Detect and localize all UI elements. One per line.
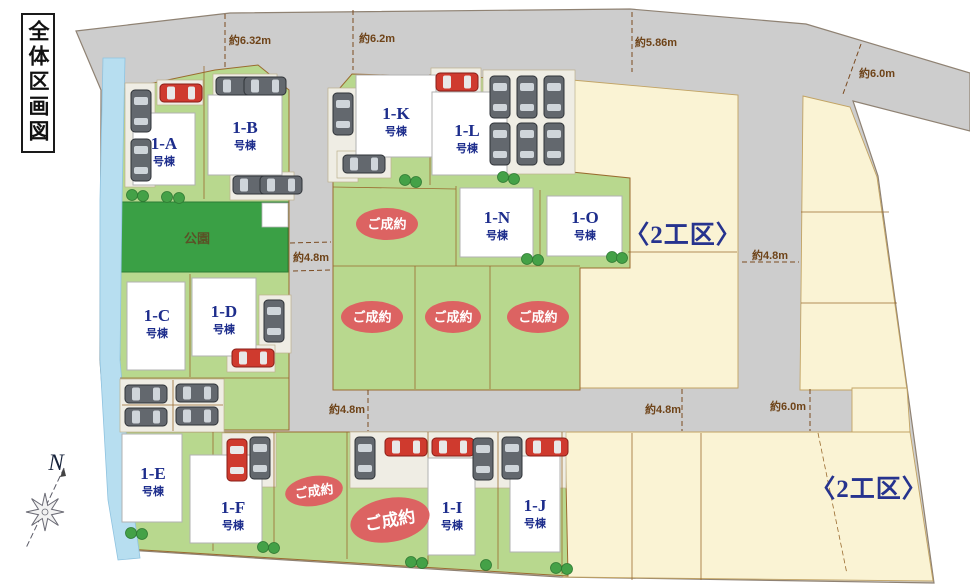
car-icon: [517, 123, 537, 165]
house-unit-suffix: 号棟: [456, 141, 479, 155]
car-icon: [490, 123, 510, 165]
car-icon: [473, 438, 493, 480]
tree-icon: [137, 529, 148, 540]
house-name: 1-J: [524, 496, 547, 515]
house-name: 1-N: [484, 208, 511, 227]
tree-icon: [562, 564, 573, 575]
lot-phase2-east: [800, 96, 907, 390]
tree-icon: [551, 563, 562, 574]
road-measurement-label: 約4.8m: [329, 402, 365, 416]
house-unit-suffix: 号棟: [234, 138, 257, 152]
tree-icon: [417, 558, 428, 569]
sold-label: ご成約: [433, 310, 472, 325]
car-icon: [544, 123, 564, 165]
car-icon: [517, 76, 537, 118]
lot-phase2-east-low: [852, 388, 910, 432]
car-icon: [176, 407, 218, 425]
compass: N: [26, 450, 66, 548]
tree-icon: [509, 174, 520, 185]
house-name: 1-E: [140, 464, 166, 483]
house-unit-suffix: 号棟: [146, 326, 169, 340]
house-unit-suffix: 号棟: [441, 518, 464, 532]
tree-icon: [138, 191, 149, 202]
house-unit-suffix: 号棟: [486, 228, 509, 242]
tree-icon: [481, 560, 492, 571]
house-unit-suffix: 号棟: [385, 124, 408, 138]
site-plan-canvas: 公園: [0, 0, 970, 587]
tree-icon: [411, 177, 422, 188]
house-unit-suffix: 号棟: [524, 516, 547, 530]
house-name: 1-L: [454, 121, 480, 140]
car-icon: [436, 73, 478, 91]
sold-badge: ご成約: [341, 301, 403, 333]
house-name: 1-D: [211, 302, 237, 321]
car-icon: [227, 439, 247, 481]
road-measurement-label: 約5.86m: [635, 35, 677, 49]
house-name: 1-I: [442, 498, 463, 517]
house-unit-suffix: 号棟: [213, 322, 236, 336]
compass-north-label: N: [47, 450, 65, 475]
zone-label-1: 〈2工区〉: [624, 221, 742, 249]
car-icon: [385, 438, 427, 456]
car-icon: [125, 408, 167, 426]
plan-title: 全体区画図: [21, 13, 55, 153]
road-measurement-label: 約6.0m: [770, 399, 806, 413]
house-name: 1-K: [382, 104, 410, 123]
park-shed: [262, 203, 288, 227]
tree-icon: [522, 254, 533, 265]
zone-label-2: 〈2工区〉: [810, 475, 928, 503]
house-unit-suffix: 号棟: [142, 484, 165, 498]
house-name: 1-F: [221, 498, 246, 517]
tree-icon: [617, 253, 628, 264]
house-name: 1-C: [144, 306, 170, 325]
house-name: 1-A: [151, 134, 178, 153]
tree-icon: [607, 252, 618, 263]
car-icon: [502, 437, 522, 479]
road-measurement-label: 約4.8m: [752, 248, 788, 262]
lot-phase2-south: [560, 432, 933, 581]
site-plan: 公園: [0, 0, 970, 587]
car-icon: [131, 139, 151, 181]
house-unit-suffix: 号棟: [574, 228, 597, 242]
car-icon: [176, 384, 218, 402]
house-lot: 1-K号棟: [356, 75, 436, 157]
tree-icon: [126, 528, 137, 539]
sold-label: ご成約: [518, 310, 557, 325]
house-lot: 1-I号棟: [428, 458, 475, 555]
tree-icon: [174, 193, 185, 204]
house-lot: 1-D号棟: [192, 278, 256, 356]
tree-icon: [498, 172, 509, 183]
house-unit-suffix: 号棟: [153, 154, 176, 168]
road-measurement-label: 約4.8m: [645, 402, 681, 416]
car-icon: [125, 385, 167, 403]
car-icon: [526, 438, 568, 456]
car-icon: [160, 84, 202, 102]
sold-label: ご成約: [367, 217, 406, 232]
sold-badge: ご成約: [507, 301, 569, 333]
sold-label: ご成約: [352, 310, 391, 325]
car-icon: [544, 76, 564, 118]
car-icon: [260, 176, 302, 194]
tree-icon: [406, 557, 417, 568]
house-unit-suffix: 号棟: [222, 518, 245, 532]
house-lot: 1-E号棟: [122, 434, 182, 522]
car-icon: [343, 155, 385, 173]
road-measurement-label: 約6.32m: [229, 33, 271, 47]
car-icon: [250, 437, 270, 479]
tree-icon: [400, 175, 411, 186]
car-icon: [432, 438, 474, 456]
road-measurement-label: 約4.8m: [293, 250, 329, 264]
compass-rose: [26, 493, 64, 531]
house-footprint: [127, 282, 185, 370]
tree-icon: [258, 542, 269, 553]
house-name: 1-O: [571, 208, 598, 227]
park-label: 公園: [184, 231, 210, 246]
sold-badge: ご成約: [356, 208, 418, 240]
car-icon: [264, 300, 284, 342]
car-icon: [131, 90, 151, 132]
tree-icon: [269, 543, 280, 554]
house-lot: 1-O号棟: [547, 196, 622, 256]
sold-badge: ご成約: [425, 301, 481, 333]
car-icon: [355, 437, 375, 479]
tree-icon: [533, 255, 544, 266]
car-icon: [490, 76, 510, 118]
car-icon: [232, 349, 274, 367]
car-icon: [244, 77, 286, 95]
house-lot: 1-C号棟: [127, 282, 185, 370]
tree-icon: [127, 190, 138, 201]
road-measurement-label: 約6.2m: [359, 31, 395, 45]
car-icon: [333, 93, 353, 135]
house-lot: 1-N号棟: [460, 188, 533, 257]
house-name: 1-B: [232, 118, 258, 137]
house-lot: 1-B号棟: [208, 95, 282, 175]
road-measurement-label: 約6.0m: [859, 66, 895, 80]
tree-icon: [162, 192, 173, 203]
